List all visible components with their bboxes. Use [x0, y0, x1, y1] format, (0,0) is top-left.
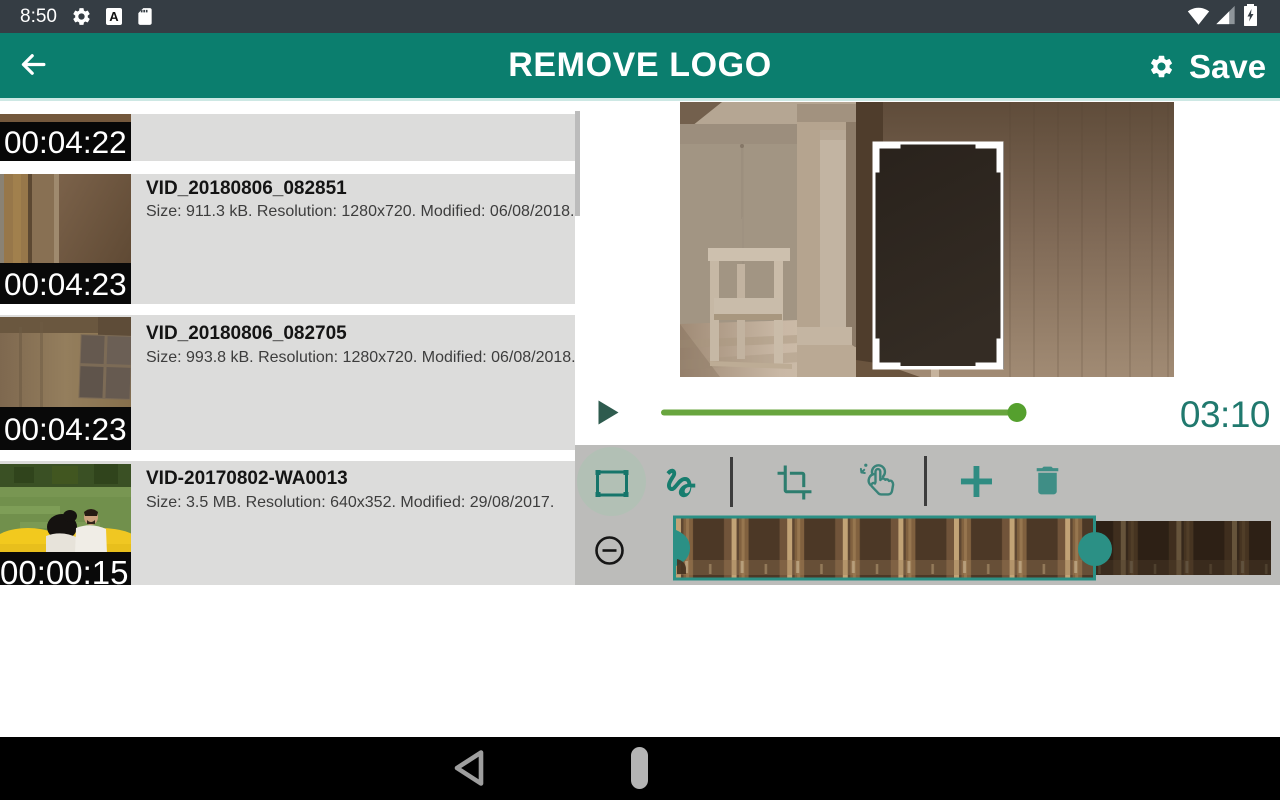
svg-text:00:00:15: 00:00:15	[0, 554, 128, 585]
svg-text:00:04:23: 00:04:23	[4, 266, 127, 302]
svg-text:00:04:23: 00:04:23	[4, 411, 127, 447]
svg-text:00:04:22: 00:04:22	[4, 124, 127, 160]
